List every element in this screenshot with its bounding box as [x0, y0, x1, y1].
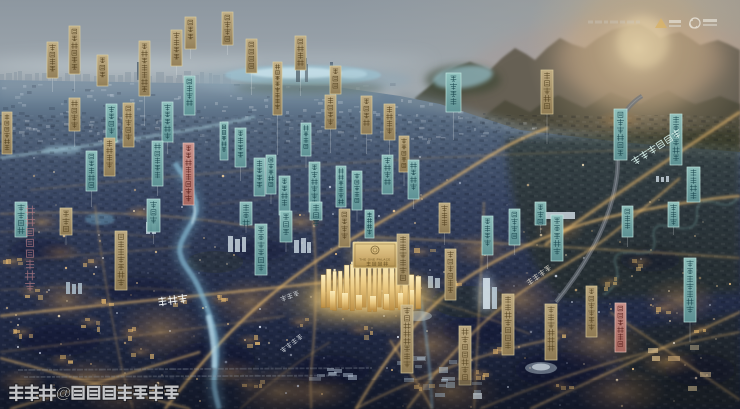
svg-text:THE ONE PALACE: THE ONE PALACE [359, 258, 390, 262]
